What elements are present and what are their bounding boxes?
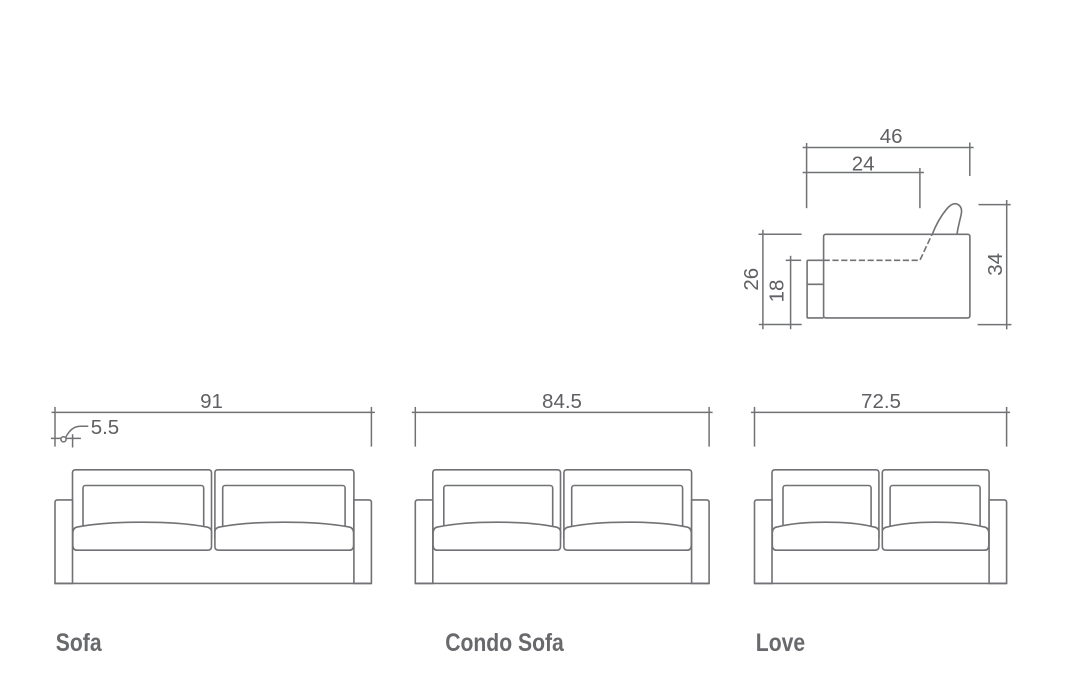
svg-text:5.5: 5.5: [91, 416, 120, 439]
svg-text:46: 46: [880, 125, 903, 148]
svg-text:Condo Sofa: Condo Sofa: [445, 629, 565, 657]
svg-text:34: 34: [984, 253, 1007, 276]
svg-text:72.5: 72.5: [861, 390, 901, 413]
svg-text:Sofa: Sofa: [56, 629, 103, 657]
svg-text:Love: Love: [756, 629, 805, 657]
svg-text:24: 24: [852, 153, 875, 176]
svg-text:84.5: 84.5: [542, 390, 582, 413]
svg-text:26: 26: [740, 268, 763, 291]
svg-text:18: 18: [765, 280, 788, 303]
svg-text:91: 91: [200, 390, 223, 413]
